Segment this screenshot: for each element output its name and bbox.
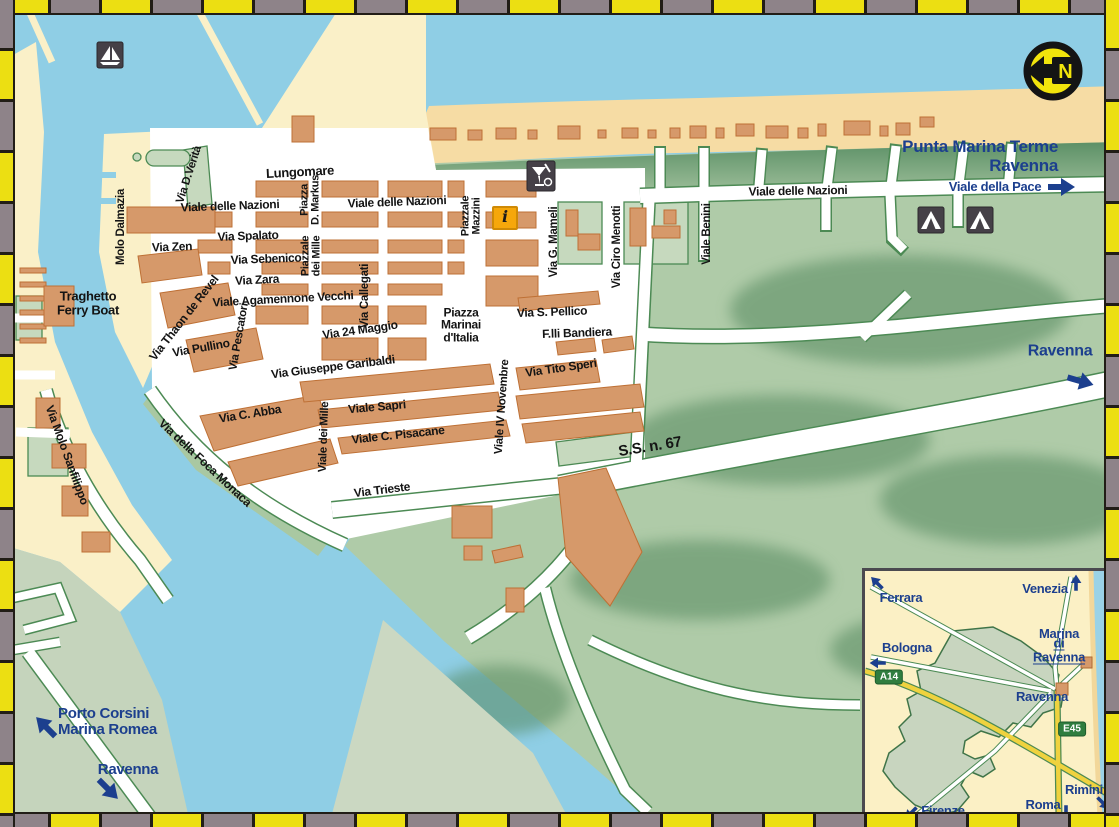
inset-badge-a14: A14 (875, 670, 903, 685)
map-canvas: N Molo Dalmazia Via D.Verità Lungomare V… (0, 0, 1119, 827)
inset-marina-marker (1081, 657, 1092, 668)
sailboat-icon (97, 42, 123, 68)
map-border-right (1104, 0, 1119, 827)
map-border-top (0, 0, 1119, 15)
inset-map: Ferrara Venezia Bologna A14 Marina di Ra… (862, 568, 1113, 820)
tent-icon (967, 207, 993, 233)
inset-graphics (865, 571, 1110, 817)
svg-text:N: N (1058, 61, 1072, 83)
bar-restaurant-icon (527, 161, 555, 191)
boat-slip (100, 198, 116, 204)
map-border-bottom (0, 812, 1119, 827)
inset-badge-e45: E45 (1058, 722, 1086, 737)
north-indicator: N (1026, 45, 1079, 97)
boat-slip (100, 172, 116, 178)
tent-icon (918, 207, 944, 233)
inset-ravenna-marker (1056, 683, 1068, 695)
info-icon: i (492, 206, 518, 230)
map-border-left (0, 0, 15, 827)
